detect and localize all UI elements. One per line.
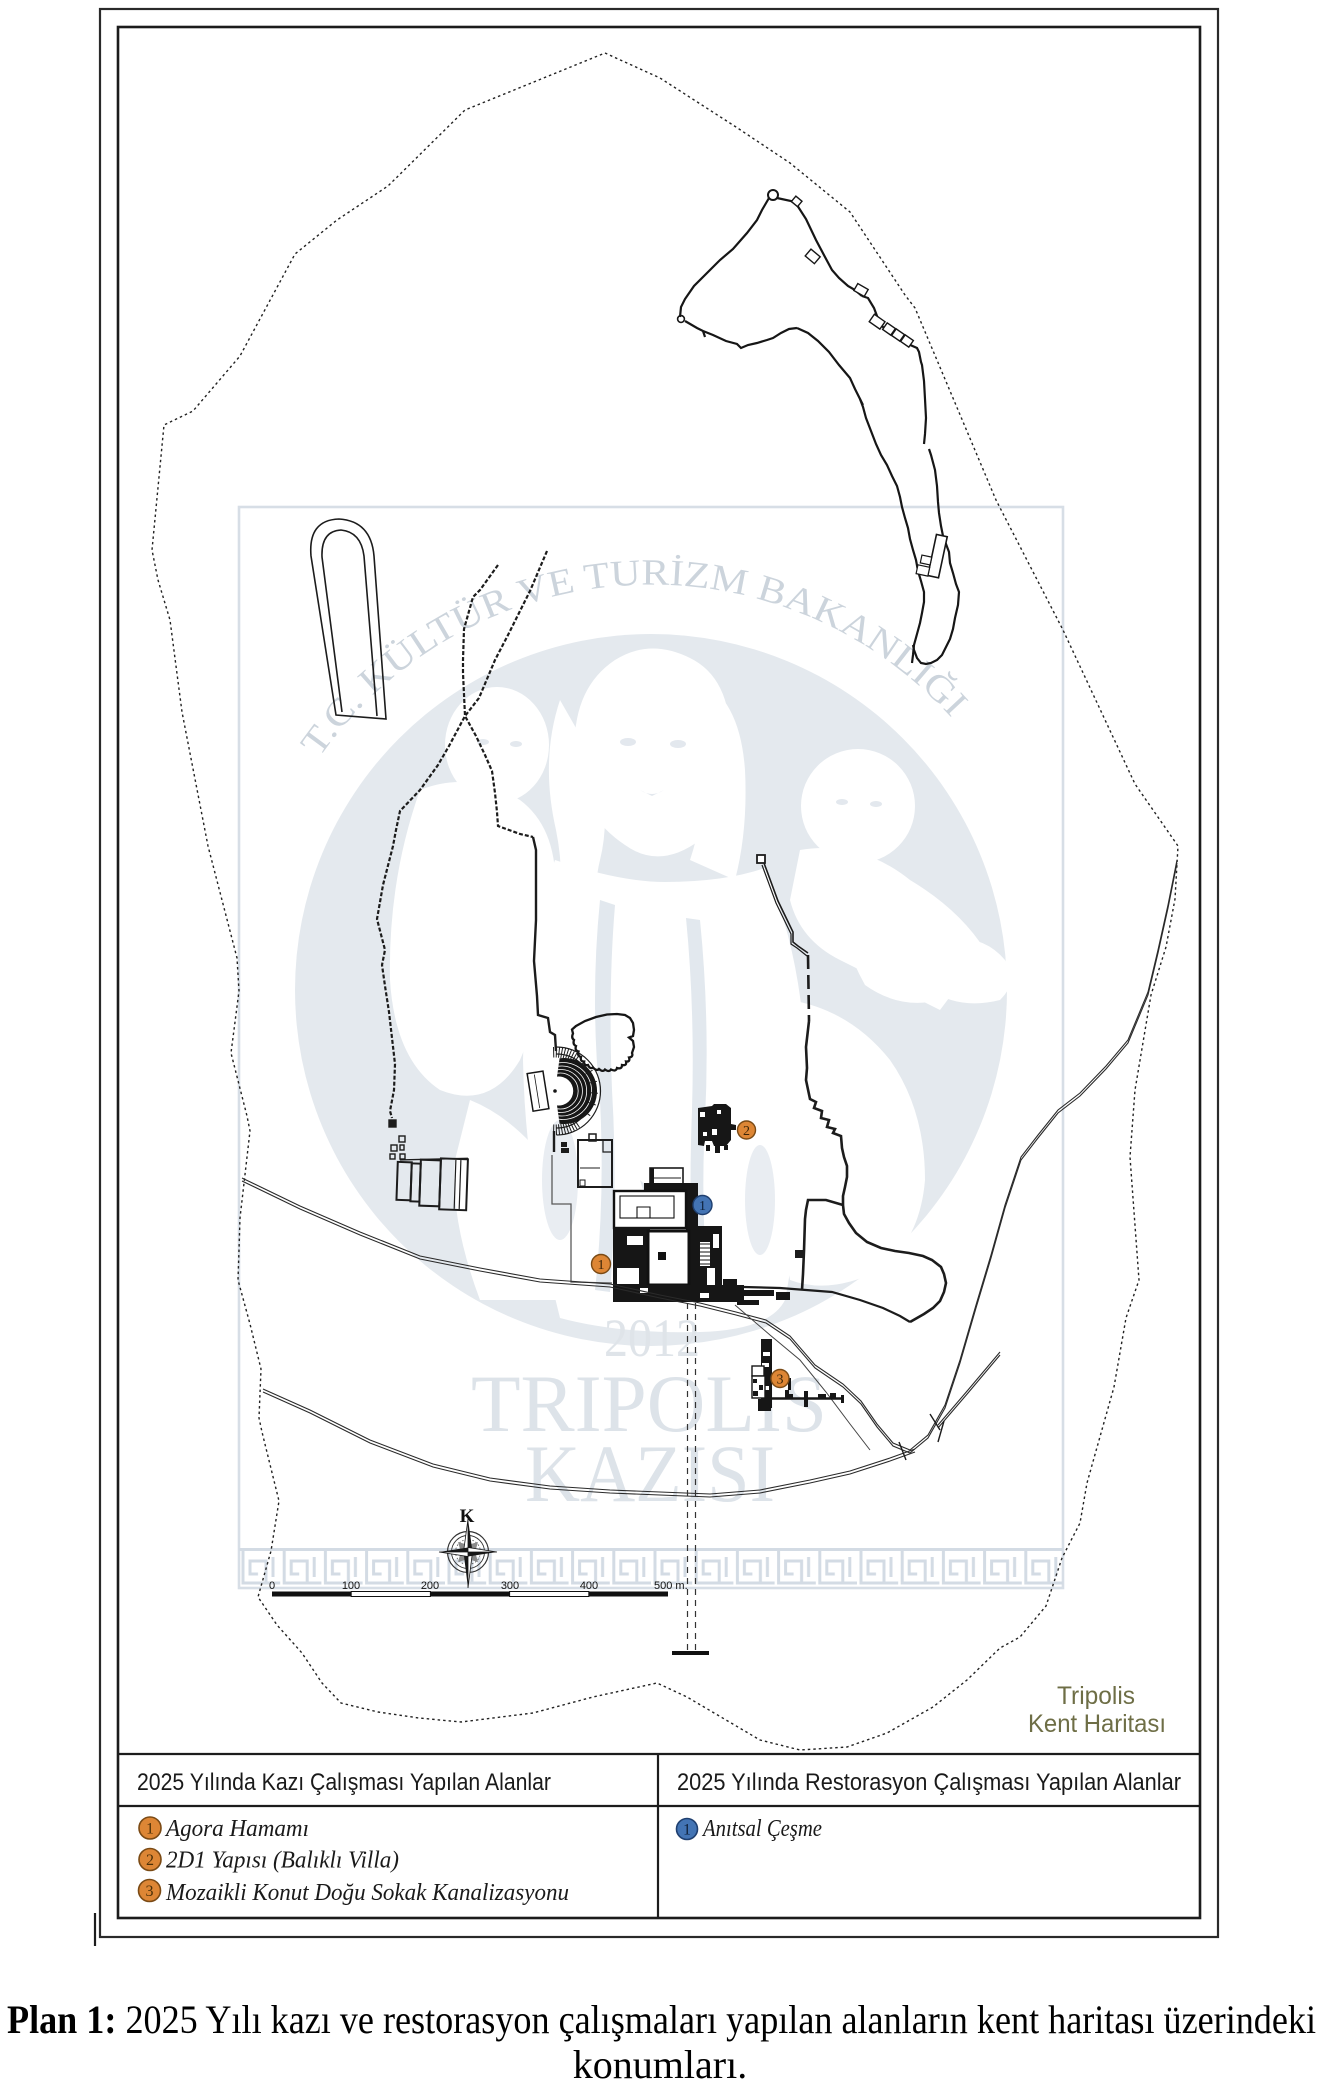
- svg-text:100: 100: [342, 1580, 360, 1592]
- svg-text:3: 3: [146, 1883, 154, 1900]
- svg-text:Tripolis: Tripolis: [1057, 1682, 1135, 1710]
- svg-text:Mozaikli Konut Doğu Sokak Kana: Mozaikli Konut Doğu Sokak Kanalizasyonu: [165, 1880, 569, 1906]
- svg-text:2: 2: [743, 1124, 750, 1139]
- svg-text:2D1 Yapısı (Balıklı Villa): 2D1 Yapısı (Balıklı Villa): [166, 1848, 399, 1874]
- svg-text:2025 Yılında Restorasyon Çalış: 2025 Yılında Restorasyon Çalışması Yapıl…: [677, 1769, 1181, 1796]
- svg-text:1: 1: [146, 1821, 154, 1838]
- svg-text:3: 3: [777, 1373, 784, 1388]
- svg-text:Agora Hamamı: Agora Hamamı: [164, 1816, 309, 1842]
- svg-text:Anıtsal Çeşme: Anıtsal Çeşme: [701, 1816, 822, 1842]
- svg-text:konumları.: konumları.: [573, 2042, 747, 2086]
- svg-text:Plan 1: 2025 Yılı kazı ve rest: Plan 1: 2025 Yılı kazı ve restorasyon ça…: [7, 1997, 1316, 2042]
- svg-text:500 m.: 500 m.: [654, 1580, 688, 1592]
- svg-text:KAZISI: KAZISI: [525, 1428, 775, 1519]
- svg-text:1: 1: [683, 1822, 691, 1839]
- svg-text:2025 Yılında Kazı Çalışması Ya: 2025 Yılında Kazı Çalışması Yapılan Alan…: [137, 1769, 551, 1796]
- svg-text:200: 200: [421, 1580, 439, 1592]
- svg-text:2: 2: [146, 1852, 154, 1869]
- svg-text:0: 0: [269, 1580, 275, 1592]
- svg-text:300: 300: [501, 1580, 519, 1592]
- svg-text:1: 1: [598, 1258, 605, 1273]
- svg-text:1: 1: [699, 1199, 706, 1214]
- svg-text:Kent Haritası: Kent Haritası: [1028, 1710, 1166, 1738]
- svg-text:400: 400: [580, 1580, 598, 1592]
